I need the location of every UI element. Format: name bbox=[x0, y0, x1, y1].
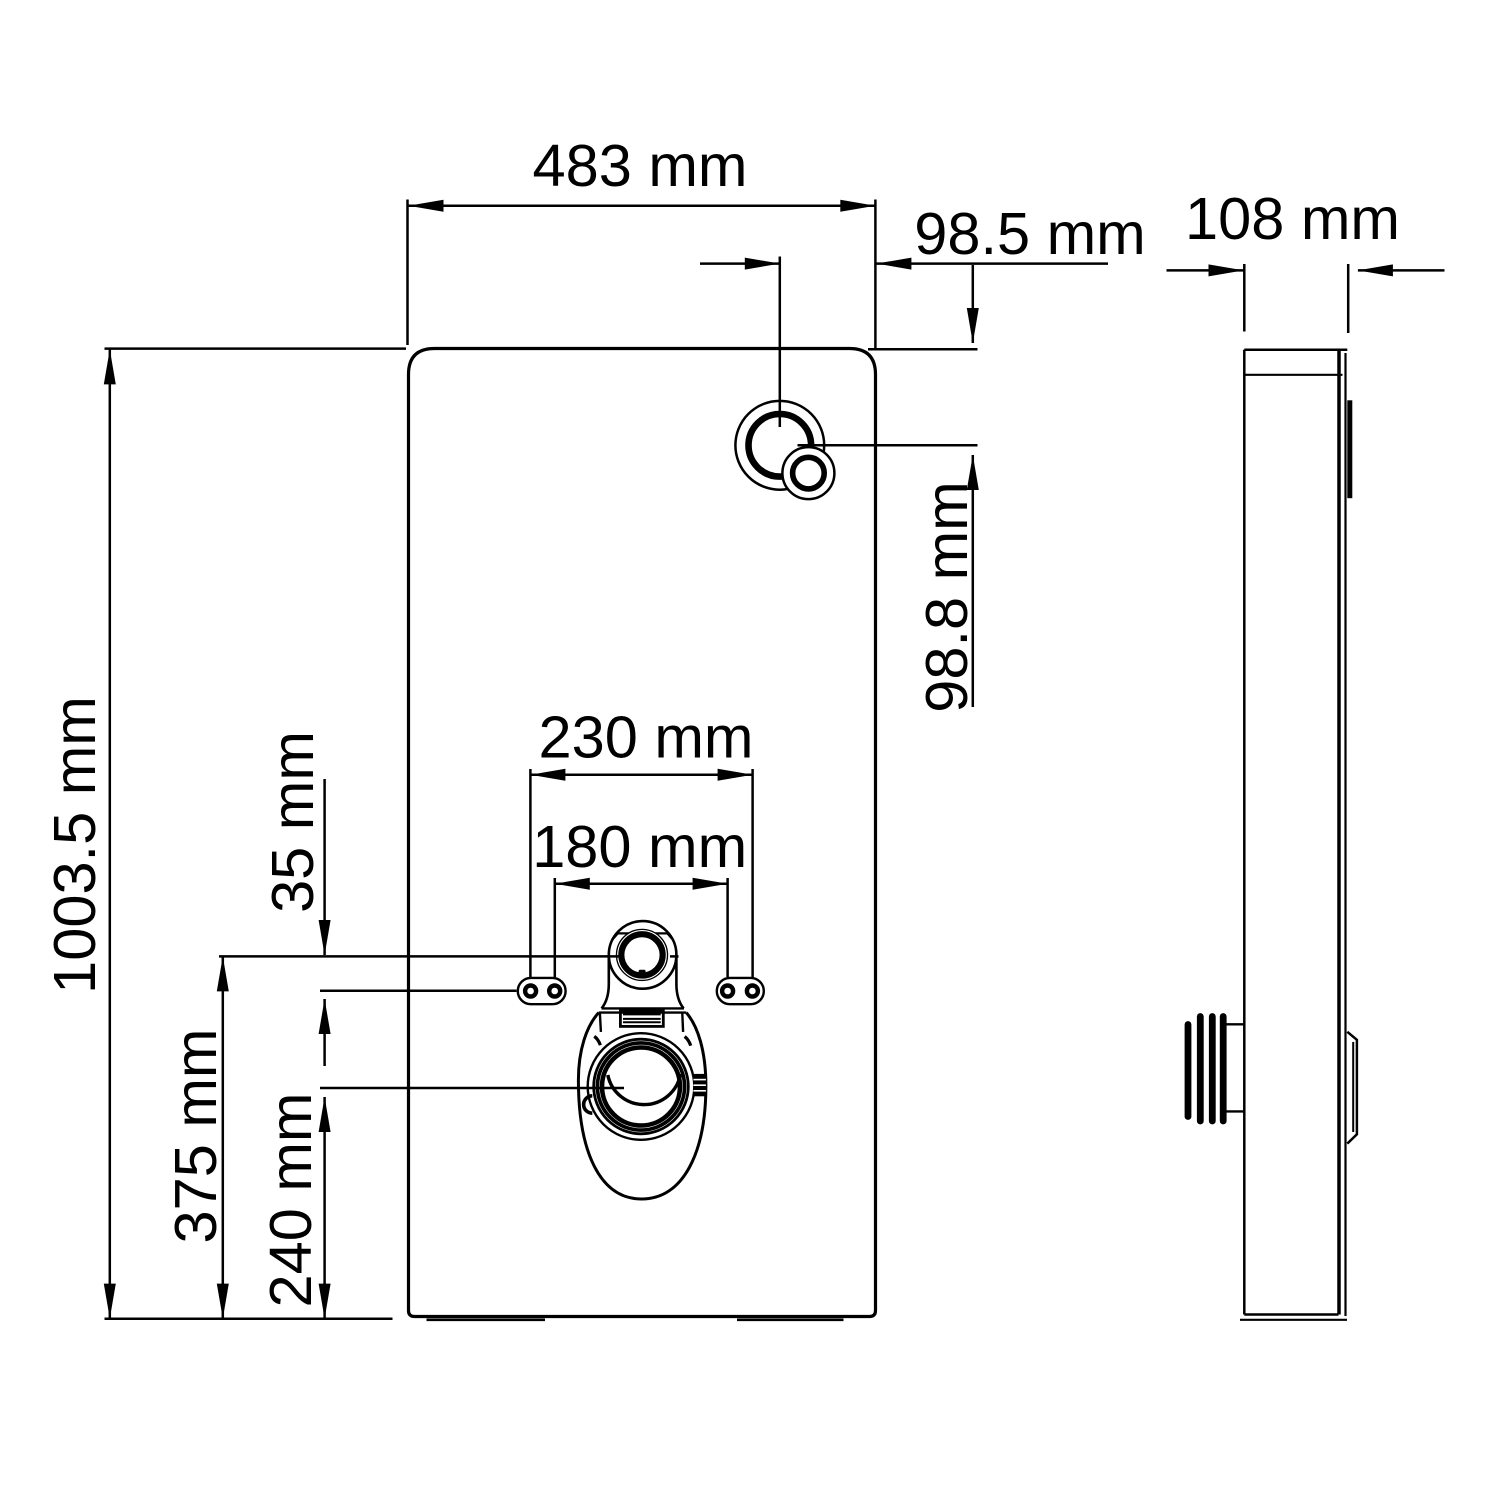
svg-text:240 mm: 240 mm bbox=[257, 1093, 324, 1308]
svg-text:108 mm: 108 mm bbox=[1185, 185, 1400, 252]
svg-text:483 mm: 483 mm bbox=[533, 132, 748, 199]
svg-text:98.8 mm: 98.8 mm bbox=[913, 481, 980, 712]
svg-text:98.5 mm: 98.5 mm bbox=[914, 200, 1145, 267]
svg-text:375 mm: 375 mm bbox=[162, 1029, 229, 1244]
svg-text:180 mm: 180 mm bbox=[532, 813, 747, 880]
svg-text:1003.5 mm: 1003.5 mm bbox=[41, 696, 108, 994]
svg-text:35 mm: 35 mm bbox=[259, 731, 326, 913]
svg-text:230 mm: 230 mm bbox=[539, 704, 754, 771]
